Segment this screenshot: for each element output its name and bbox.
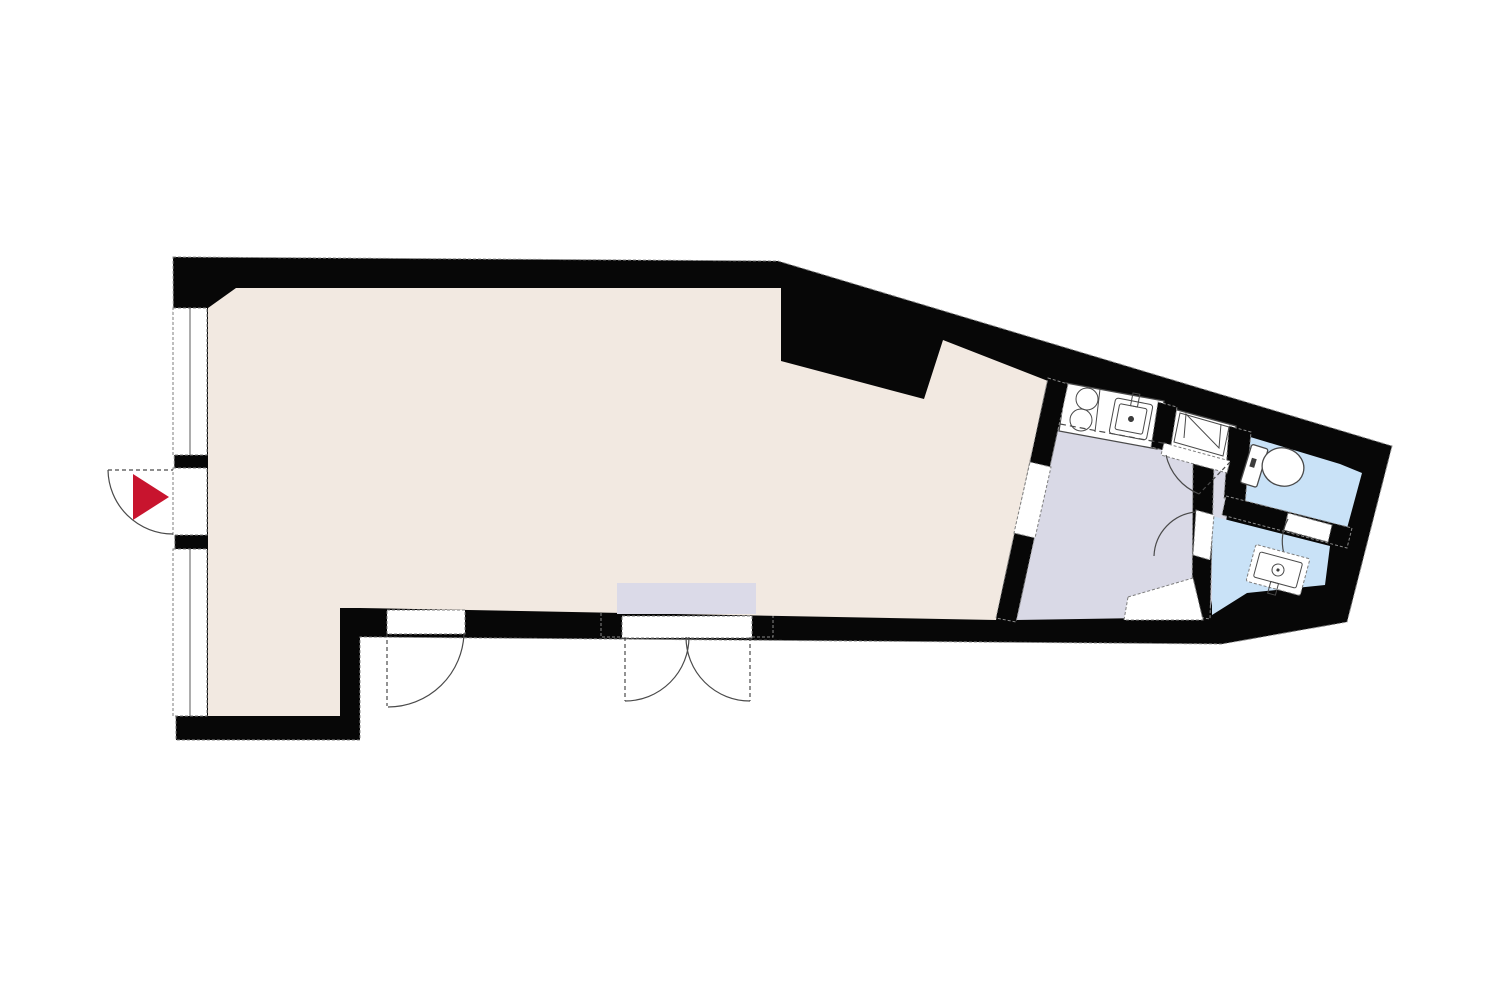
- washbasin-door-leaf: [1193, 510, 1214, 560]
- floor-plan-canvas: [0, 0, 1500, 1000]
- floor-plan-page: [0, 0, 1500, 1000]
- window-left-lower: [173, 549, 207, 716]
- double-door-threshold: [622, 616, 752, 638]
- alcove-inset-floor: [617, 583, 756, 614]
- window-left-upper: [173, 308, 207, 455]
